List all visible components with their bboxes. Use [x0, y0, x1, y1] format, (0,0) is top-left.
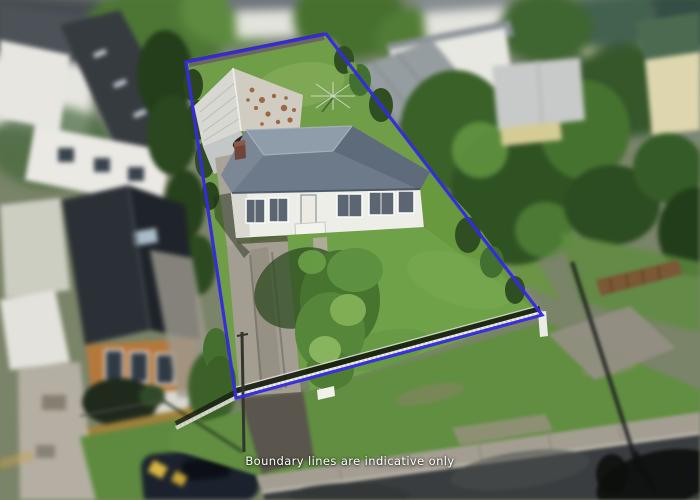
aerial-photo: Boundary lines are indicative only	[0, 0, 700, 500]
boundary-overlay	[0, 0, 700, 500]
boundary-line	[186, 34, 542, 398]
boundary-disclaimer: Boundary lines are indicative only	[0, 454, 700, 468]
